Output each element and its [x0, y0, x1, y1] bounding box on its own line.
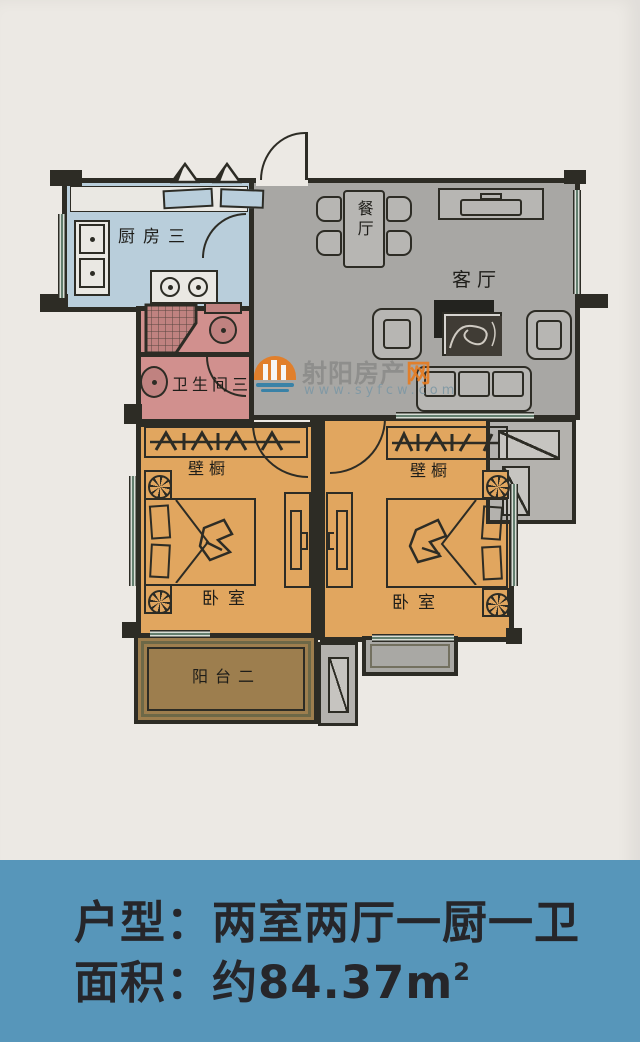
nightstand: [144, 584, 172, 614]
window-kitchen-left: [58, 214, 66, 298]
armchair-cushion: [536, 320, 562, 350]
balcony-label: 阳台二: [192, 668, 261, 686]
closet-right-label: 壁橱: [410, 462, 452, 480]
bed-left: [144, 498, 256, 586]
sofa-cushion: [458, 371, 490, 397]
nightstand: [144, 470, 172, 500]
floor-plan-page: 厨房三 餐厅 客厅: [0, 0, 640, 1042]
nightstand: [482, 588, 509, 617]
bay-platform-inner: [370, 644, 450, 668]
dining-label: 餐厅: [355, 200, 373, 240]
bed-sheet-lines: [146, 500, 253, 583]
kitchen-counter-pane: [163, 188, 214, 210]
kitchen-counter-pane: [220, 188, 265, 209]
bay-platform: [362, 636, 458, 676]
living-label: 客厅: [452, 270, 502, 291]
wall-pier: [122, 622, 140, 638]
armchair: [526, 310, 572, 360]
stove-icon: [150, 270, 218, 304]
shaft-duct-icon: [328, 657, 349, 713]
area-value: 面积：约84.37m: [74, 956, 453, 1009]
hanger-zigzag-icon: [388, 428, 504, 457]
window-bedroom-left: [129, 476, 137, 586]
closet-left-label: 壁橱: [188, 460, 230, 478]
bathroom-label: 卫生间三: [172, 376, 252, 394]
layout-text: 户型：两室两厅一厨一卫: [74, 886, 580, 951]
tv-icon: [442, 312, 502, 356]
wall-pier: [564, 170, 586, 184]
window-balcony-door: [150, 630, 210, 638]
sideboard-cabinet: [438, 188, 544, 220]
bedroom-right-label: 卧室: [392, 594, 444, 613]
desk-left-inner: [290, 510, 302, 570]
lamp-icon: [148, 475, 172, 499]
vent-icon: [212, 162, 242, 184]
desk-left-notch: [302, 532, 308, 550]
entrance-door-arc: [260, 132, 305, 180]
lamp-icon: [486, 475, 510, 499]
closet-right: [386, 426, 508, 460]
armchair-cushion: [383, 319, 411, 349]
toilet-tank: [204, 302, 242, 314]
sofa-cushion: [492, 371, 524, 397]
floor-plan: 厨房三 餐厅 客厅: [0, 0, 640, 860]
bedroom-left-label: 卧室: [202, 590, 254, 609]
watermark-logo-icon: [254, 356, 296, 396]
sideboard-decor: [460, 199, 522, 216]
sideboard-decor-top: [480, 193, 502, 200]
bathroom-sink-icon: [140, 366, 168, 398]
shower-icon: [144, 303, 200, 355]
desk-left: [284, 492, 311, 588]
window-living-bottom: [396, 412, 534, 420]
dining-table: 餐厅: [343, 190, 385, 268]
window-bedroom-right-bottom: [372, 634, 454, 642]
lamp-icon: [486, 593, 510, 617]
wall-pier: [124, 404, 142, 424]
lamp-icon: [148, 590, 172, 614]
bed-right: [386, 498, 508, 588]
entrance-door-leaf: [305, 132, 308, 180]
dining-chair: [386, 196, 412, 222]
area-text: 面积：约84.37m2: [74, 946, 471, 1011]
kitchen-label: 厨房三: [118, 228, 193, 247]
info-banner: 户型：两室两厅一厨一卫 面积：约84.37m2: [0, 860, 640, 1042]
vent-icon: [170, 162, 200, 184]
balcony-shaft: [318, 642, 358, 726]
wall-pier: [50, 170, 82, 186]
nightstand: [482, 470, 509, 499]
window-living-right: [573, 190, 581, 294]
wall-pier: [506, 628, 522, 644]
desk-right: [326, 492, 353, 588]
toilet-icon: [204, 302, 242, 346]
area-superscript: 2: [453, 958, 471, 986]
desk-right-inner: [336, 510, 348, 570]
window-bedroom-right: [510, 484, 518, 586]
dining-chair: [316, 196, 342, 222]
bed-sheet-lines: [388, 500, 505, 585]
desk-right-notch: [328, 532, 334, 550]
dining-chair: [316, 230, 342, 256]
watermark-url: www.syfcw.com: [304, 383, 458, 398]
toilet-bowl: [209, 316, 237, 344]
watermark: 射阳房产网 www.syfcw.com: [254, 352, 434, 400]
wall-pier: [576, 294, 608, 308]
kitchen-sink-icon: [74, 220, 110, 296]
dining-chair: [386, 230, 412, 256]
